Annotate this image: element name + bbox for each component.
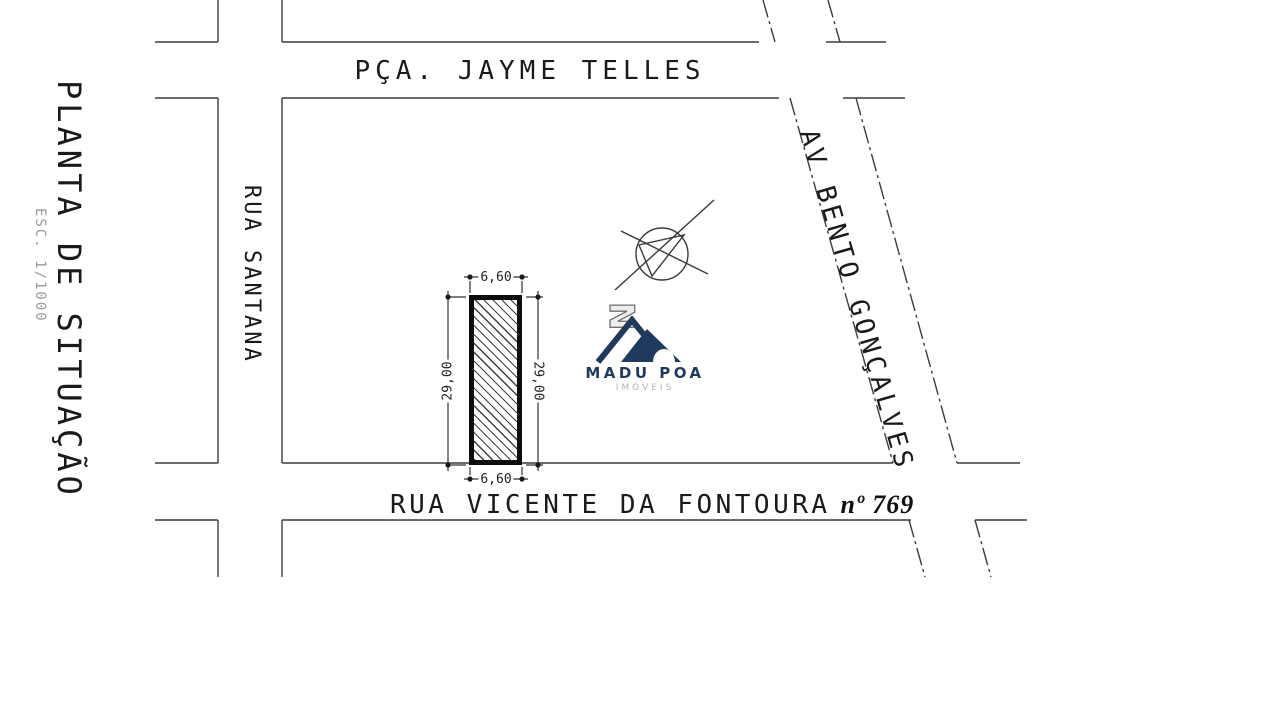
dim-top-label: 6,60 [478, 271, 513, 284]
site-plan-canvas: N 6,60 6,60 29,00 29,00 PLANTA DE SITUAÇ… [0, 0, 1280, 713]
page-title: PLANTA DE SITUAÇÃO [50, 80, 88, 499]
dim-left-label: 29,00 [442, 359, 455, 402]
street-number: nº 769 [841, 490, 915, 520]
street-label-bottom: RUA VICENTE DA FONTOURA [390, 490, 831, 520]
logo-mountain-icon [583, 310, 708, 368]
street-label-bottom-group: RUA VICENTE DA FONTOURA nº 769 [390, 490, 914, 520]
dim-bottom-label: 6,60 [478, 473, 513, 486]
street-label-left: RUA SANTANA [239, 185, 264, 364]
street-label-top: PÇA. JAYME TELLES [354, 56, 705, 86]
scale-label: ESC. 1/1000 [32, 208, 48, 323]
lot-parcel [469, 295, 522, 465]
logo-subtitle: IMÓVEIS [616, 383, 675, 393]
logo-name: MADU POA [585, 364, 704, 382]
compass-rose-icon [615, 200, 714, 290]
dim-right-label: 29,00 [532, 359, 545, 402]
